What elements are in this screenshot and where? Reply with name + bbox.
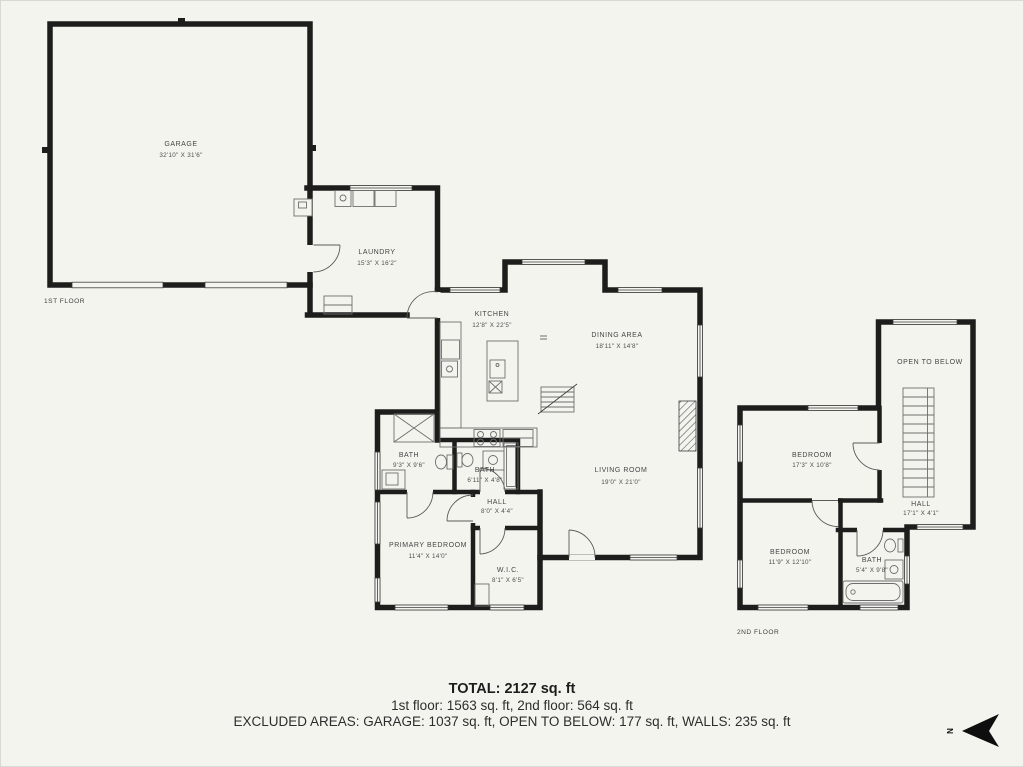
- first-floor-walls: [42, 18, 700, 608]
- room-label-garage: GARAGE: [164, 141, 197, 148]
- room-label-bath2: BATH: [475, 467, 495, 474]
- room-label-bedroom2: BEDROOM: [770, 549, 810, 556]
- room-dims-hall2: 17'1" X 4'1": [903, 510, 939, 517]
- ceiling-mark: [540, 336, 547, 339]
- room-dims-bath1: 9'3" X 9'6": [393, 462, 425, 469]
- room-dims-hall: 8'0" X 4'4": [481, 508, 513, 515]
- room-dims-garage: 32'10" X 31'6": [159, 152, 202, 159]
- room-dims-wic: 8'1" X 6'5": [492, 577, 524, 584]
- first-floor-plan: GARAGE 32'10" X 31'6" LAUNDRY 15'3" X 16…: [42, 18, 703, 610]
- laundry-appliances: [335, 191, 396, 207]
- room-label-bath1: BATH: [399, 452, 419, 459]
- summary-total: TOTAL: 2127 sq. ft: [0, 681, 1024, 698]
- room-label-bath3: BATH: [862, 557, 882, 564]
- room-dims-bedroom1: 17'3" X 10'8": [792, 462, 832, 469]
- kitchen-sink: [442, 361, 458, 377]
- first-floor-fixtures: [294, 191, 696, 607]
- room-label-dining: DINING AREA: [591, 332, 642, 339]
- second-floor-tag: 2ND FLOOR: [737, 629, 779, 636]
- summary-floors: 1st floor: 1563 sq. ft, 2nd floor: 564 s…: [0, 698, 1024, 714]
- second-floor-labels: OPEN TO BELOW BEDROOM 17'3" X 10'8" HALL…: [737, 359, 963, 636]
- fridge: [442, 340, 460, 359]
- area-summary: TOTAL: 2127 sq. ft 1st floor: 1563 sq. f…: [0, 681, 1024, 729]
- floorplan-svg: GARAGE 32'10" X 31'6" LAUNDRY 15'3" X 16…: [0, 0, 1024, 767]
- room-dims-living: 19'0" X 21'0": [601, 479, 641, 486]
- wic-shelf: [475, 584, 489, 606]
- stairs-icon: [538, 384, 577, 414]
- stairs-icon-2: [903, 388, 934, 497]
- room-label-kitchen: KITCHEN: [475, 311, 510, 318]
- summary-excluded: EXCLUDED AREAS: GARAGE: 1037 sq. ft, OPE…: [0, 714, 1024, 730]
- room-dims-dining: 18'11" X 14'8": [596, 343, 639, 350]
- pantry-closet: [394, 414, 434, 442]
- room-dims-bath2: 6'11" X 4'8": [467, 477, 502, 484]
- room-label-bedroom1: BEDROOM: [792, 452, 832, 459]
- room-label-hall2: HALL: [911, 501, 931, 508]
- kitchen-island: [487, 341, 518, 401]
- room-label-wic: W.I.C.: [497, 567, 519, 574]
- fireplace: [679, 401, 696, 451]
- room-dims-primary-bedroom: 11'4" X 14'0": [408, 553, 447, 560]
- first-floor-labels: GARAGE 32'10" X 31'6" LAUNDRY 15'3" X 16…: [44, 141, 647, 584]
- room-dims-laundry: 15'3" X 16'2": [357, 260, 397, 267]
- room-label-living: LIVING ROOM: [595, 467, 648, 474]
- north-label: N: [945, 728, 954, 734]
- room-dims-bath3: 5'4" X 9'8": [856, 567, 888, 574]
- room-label-open-to-below: OPEN TO BELOW: [897, 359, 963, 366]
- bathtub: [843, 581, 903, 603]
- first-floor-tag: 1ST FLOOR: [44, 298, 85, 305]
- room-dims-bedroom2: 11'9" X 12'10": [769, 559, 812, 566]
- room-label-laundry: LAUNDRY: [358, 249, 395, 256]
- floorplan-page: GARAGE 32'10" X 31'6" LAUNDRY 15'3" X 16…: [0, 0, 1024, 767]
- second-floor-plan: OPEN TO BELOW BEDROOM 17'3" X 10'8" HALL…: [737, 320, 973, 637]
- laundry-closet: [324, 296, 352, 314]
- room-dims-kitchen: 12'8" X 22'5": [472, 322, 512, 329]
- room-label-hall: HALL: [487, 499, 507, 506]
- bath1-fixtures: [382, 455, 453, 489]
- room-label-primary-bedroom: PRIMARY BEDROOM: [389, 542, 467, 549]
